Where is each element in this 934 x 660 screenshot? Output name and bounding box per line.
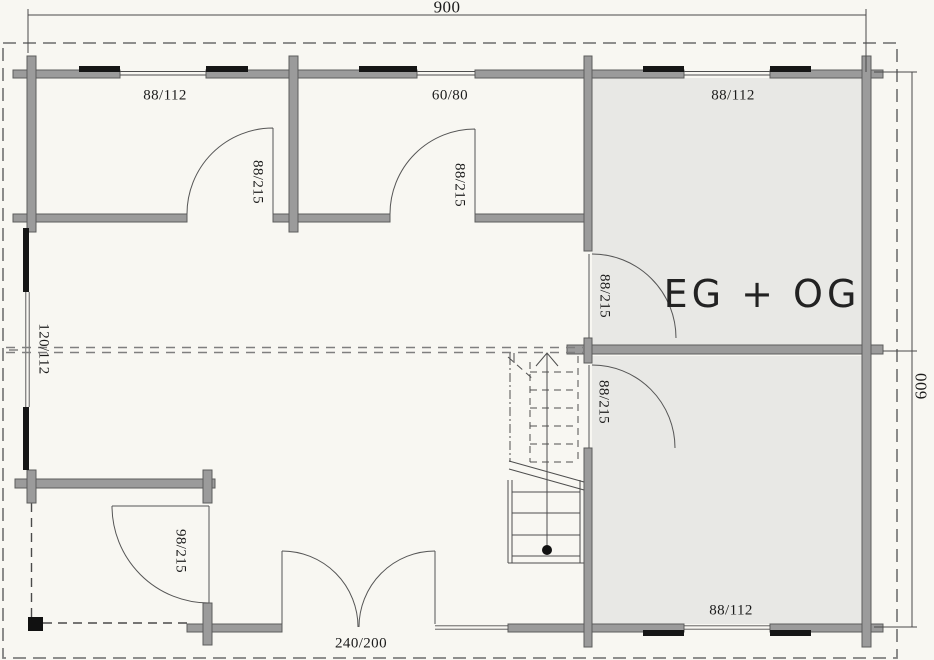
dimension-width-label: 900	[434, 0, 461, 16]
terrace-dashed-edge	[32, 503, 188, 623]
stair-start-dot	[542, 545, 552, 555]
staircase	[508, 353, 584, 563]
two-story-room-label: EG + OG	[664, 272, 861, 316]
door-label-terrace-double: 240/200	[335, 637, 387, 652]
window-label-top-right: 88/112	[711, 89, 755, 104]
terrace-post	[28, 617, 43, 631]
section-dashed-line	[6, 348, 584, 353]
door-label-two-story-upper: 88/215	[597, 274, 612, 318]
door-label-two-story-lower: 88/215	[596, 380, 611, 424]
window-label-bottom-right: 88/112	[709, 604, 753, 619]
window-label-left: 120/112	[36, 323, 51, 374]
door-label-storage: 98/215	[173, 529, 188, 573]
dimension-height-label: 600	[913, 373, 930, 400]
floor-plan: 900 600 88/112 60/80 88/112 88/112 120/1…	[0, 0, 934, 660]
window-label-top-middle: 60/80	[432, 89, 468, 104]
door-label-room2: 88/215	[452, 163, 467, 207]
window-label-top-left: 88/112	[143, 89, 187, 104]
door-label-room1: 88/215	[250, 160, 265, 204]
